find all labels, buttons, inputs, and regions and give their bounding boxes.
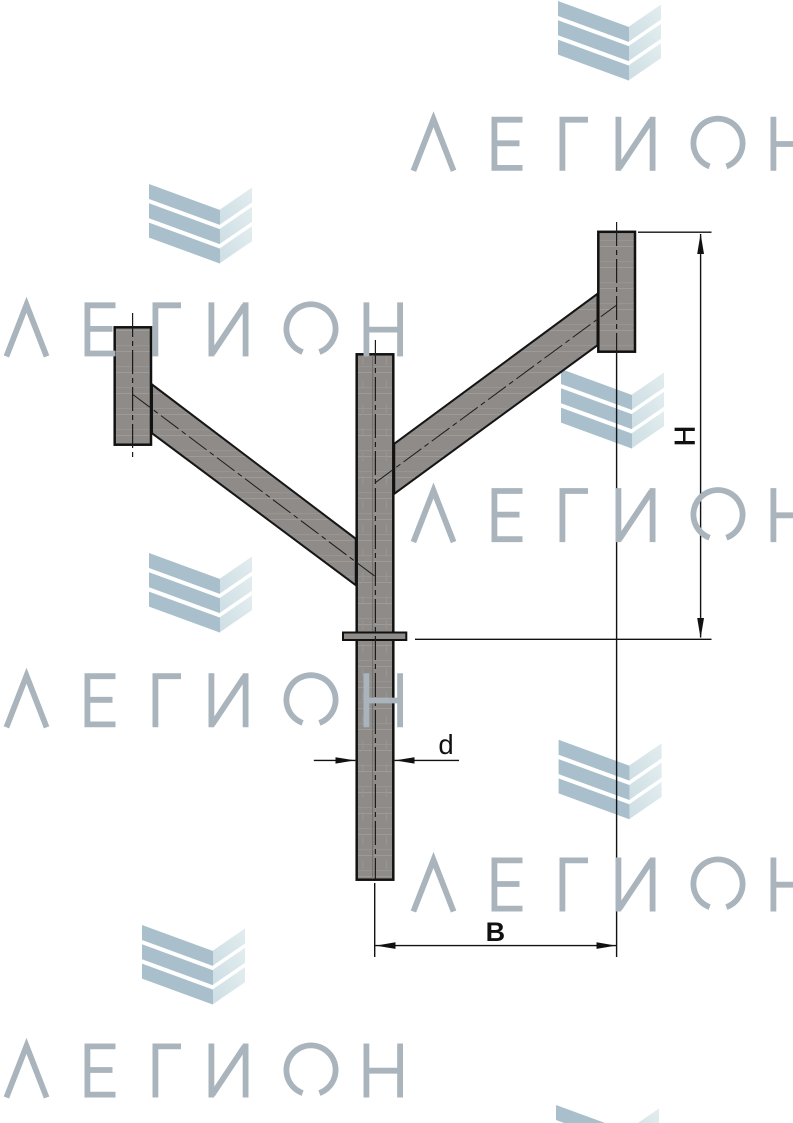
- svg-text:d: d: [438, 729, 453, 760]
- svg-text:B: B: [486, 917, 506, 947]
